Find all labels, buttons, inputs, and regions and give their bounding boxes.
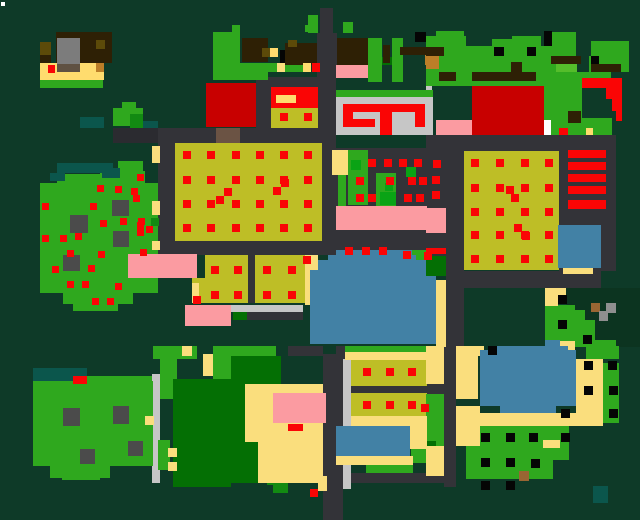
sand [426,446,444,476]
crop-dot [207,151,215,159]
berry-dot [88,265,95,272]
sand [456,406,480,446]
palm-dot [561,409,570,418]
crop-dot [545,255,553,263]
berry-dot [131,188,138,195]
crop-dot [432,176,440,184]
palm-dot [558,320,567,329]
palm-dot [584,361,593,370]
berry-dot [60,235,67,242]
berry-dot [107,298,114,305]
crop-dot [232,200,240,208]
crop-dot [545,184,553,192]
yellow-accent [277,63,285,72]
grass [426,36,466,46]
grass [436,399,444,413]
sand [336,456,413,465]
crop-dot [183,176,191,184]
crop-dot [545,231,553,239]
crop-dot [521,255,529,263]
grass [552,32,576,46]
grass [232,25,240,33]
berry-dot [42,203,49,210]
palm-dot [481,433,490,442]
plaza [415,112,425,127]
museum-house [216,128,240,143]
sand [152,241,160,250]
museum-house [57,64,80,72]
berry-dot [92,298,99,305]
crop-dot [471,159,479,167]
crop-dot [280,224,288,232]
tree [556,64,577,72]
crop-dot [207,200,215,208]
crop-dot [273,187,281,195]
red-accent [288,424,303,431]
tree [439,72,456,81]
tree [426,56,439,69]
crop-dot [256,200,264,208]
museum-house [96,63,104,72]
pink-zone [436,120,472,135]
red-accent [568,150,606,158]
crop-dot [408,401,416,409]
forest [233,312,247,320]
rock [113,231,129,247]
plaza [380,112,392,135]
museum-house [40,42,51,55]
berry-dot [137,222,144,229]
crop-dot [304,176,312,184]
red-accent [568,162,606,170]
grass [213,63,268,80]
teal-patch [102,168,120,178]
garden-square [406,167,416,177]
crop-dot [421,404,429,412]
crop-dot [232,151,240,159]
water [545,340,560,351]
crop-dot [304,151,312,159]
crop-dot [363,368,371,376]
crop-dot [433,160,441,168]
pink-zone [336,206,427,230]
crop-dot [280,113,288,121]
tree [415,32,426,42]
road [351,386,427,393]
crop-dot [514,224,522,232]
water [310,316,426,344]
crop-dot [545,208,553,216]
road [317,33,337,77]
fence [343,359,351,489]
grass [122,102,136,110]
crop-dot [511,194,519,202]
grass [593,340,616,351]
crop-dot [183,200,191,208]
road [320,8,333,33]
crop-dot [368,194,376,202]
crop-dot [414,159,422,167]
sand [168,448,177,457]
crop-dot [545,159,553,167]
crop-dot [256,151,264,159]
berry-dot [115,283,122,290]
forest [231,436,261,483]
tree [337,38,368,65]
crop-dot [424,252,432,260]
crop-dot [288,291,296,299]
crop-dot [256,224,264,232]
grass [411,449,427,463]
crop-dot [183,151,191,159]
crop-dot [496,159,504,167]
sand [545,296,558,306]
crop-dot [232,224,240,232]
tree [494,47,504,56]
crop-dot [496,231,504,239]
rock [80,449,95,464]
rock [63,408,80,426]
crop-dot [408,368,416,376]
red-accent [568,186,606,194]
grass [62,474,100,480]
red-accent [582,78,622,88]
berry-dot [82,281,89,288]
garden-square [351,160,361,170]
museum-house [48,65,55,73]
building [544,120,551,135]
red-accent [568,200,606,209]
water [480,350,576,406]
crop-dot [211,291,219,299]
crop-dot [183,224,191,232]
grass [305,25,313,32]
grass [512,36,541,46]
berry-dot [98,251,105,258]
crop-dot [345,247,353,255]
red-accent [568,174,606,182]
pink-zone [336,65,368,78]
road [444,347,456,487]
sand [168,462,177,471]
sand [563,268,593,274]
garden-square [380,192,396,205]
crop-dot [304,113,312,121]
rock [70,215,88,233]
red-accent [312,63,320,72]
tree [568,111,581,123]
grass [426,81,472,86]
sand [351,416,427,426]
palm-dot [558,295,567,304]
road [248,255,255,303]
berry-dot [120,218,127,225]
palm-dot [529,433,538,442]
pink-zone [273,393,326,423]
water [424,276,436,344]
crop-dot [408,177,416,185]
grass [392,38,403,82]
tree [527,47,536,56]
tree [519,471,529,481]
palm-dot [506,433,515,442]
water [558,225,601,268]
sand [410,426,427,449]
palm-dot [488,346,497,355]
crop-dot [379,247,387,255]
grass [591,41,629,56]
crop-dot [224,188,232,196]
rock [128,441,143,456]
palm-dot [609,386,618,395]
crop-dot [232,176,240,184]
berry-dot [115,186,122,193]
plaza [353,119,375,127]
water [500,406,556,413]
tree [383,45,390,63]
crop-dot [288,266,296,274]
berry-dot [67,250,74,257]
crop-dot [471,184,479,192]
pink-zone [128,254,197,278]
forest [273,485,288,493]
crop-dot [432,191,440,199]
crop-dot [386,177,394,185]
crop-dot [356,194,364,202]
crop-dot [521,208,529,216]
grass [151,218,159,226]
road [288,346,323,356]
teal-patch [50,173,65,181]
road [158,241,336,255]
crop-dot [310,489,318,497]
berry-dot [137,229,144,236]
crop-dot [280,200,288,208]
tree [551,56,581,64]
grass [213,346,231,379]
teal-patch [593,486,608,503]
sand [152,201,160,215]
tree [599,311,608,321]
tree [288,40,297,47]
crop-dot [399,159,407,167]
forest [173,379,231,487]
sand [345,352,427,360]
plaza [343,104,425,112]
berry-dot [90,203,97,210]
rock [112,200,129,216]
crop-dot [521,184,529,192]
sand [456,346,478,399]
water [336,426,410,456]
crop-dot [416,194,424,202]
crop-dot [216,196,224,204]
red-accent [559,128,568,135]
rock [63,255,80,271]
palm-dot [608,361,617,370]
tree [591,56,599,64]
palm-dot [506,458,515,467]
crop-dot [280,151,288,159]
crop-dot [363,401,371,409]
crop-dot [386,368,394,376]
crop-dot [521,159,529,167]
sand [182,346,192,356]
red-accent [616,111,622,121]
museum-house [40,80,103,88]
berry-dot [42,235,49,242]
tree [426,47,444,56]
tree [544,31,552,46]
red-accent [73,376,87,384]
building [472,86,544,135]
crop-dot [471,208,479,216]
water [318,260,426,320]
crop-dot [303,256,311,264]
road [426,384,444,394]
palm-dot [481,458,490,467]
crop-dot [384,159,392,167]
berry-dot [100,220,107,227]
crop-dot [234,266,242,274]
crop-dot [496,255,504,263]
crop-dot [403,251,411,259]
berry-dot [133,195,140,202]
tree [270,48,278,57]
sand [426,346,444,384]
speck [1,2,5,6]
palm-dot [561,433,570,442]
berry-dot [146,226,153,233]
crop-dot [281,179,289,187]
palm-dot [584,386,593,395]
sand [203,354,213,376]
fence [231,305,303,312]
museum-house [96,40,105,49]
crop-dot [471,255,479,263]
farm-field [175,143,322,241]
crop-dot [263,266,271,274]
pink-zone [426,208,446,233]
sand [145,416,154,425]
game-world-map[interactable] [0,0,640,520]
teal-patch [143,121,158,128]
crop-dot [506,186,514,194]
crop-dot [207,224,215,232]
yellow-accent [303,63,311,72]
tree [511,62,522,72]
berry-dot [52,266,59,273]
rock [113,406,129,424]
building [276,95,296,103]
sand [318,476,327,491]
sand [332,150,348,175]
crop-dot [193,296,201,304]
crop-dot [234,291,242,299]
crop-dot [368,159,376,167]
road [322,128,336,241]
crop-dot [211,266,219,274]
palm-dot [481,481,490,490]
road [158,143,175,241]
water [310,270,318,320]
palm-dot [506,481,515,490]
crop-dot [522,232,530,240]
crop-dot [356,177,364,185]
crop-dot [304,200,312,208]
sand [543,440,560,448]
palm-dot [583,335,592,344]
berry-dot [137,174,144,181]
palm-dot [531,459,540,468]
road [113,128,158,143]
berry-dot [75,233,82,240]
crop-dot [256,176,264,184]
red-accent [612,99,622,111]
crop-dot [419,177,427,185]
yellow-accent [586,128,593,135]
crop-dot [207,176,215,184]
tree [472,72,536,81]
berry-dot [67,281,74,288]
grass [130,114,143,128]
crop-dot [496,184,504,192]
sand [152,146,160,163]
plaza [343,112,353,127]
crop-dot [471,231,479,239]
crop-dot [263,291,271,299]
grass [343,22,353,33]
berry-dot [97,185,104,192]
berry-dot [140,249,147,256]
grass [338,173,346,206]
sand [436,280,446,347]
road [247,312,303,320]
forest [175,477,208,485]
grass [578,118,612,135]
pink-zone [185,305,231,326]
crop-dot [304,224,312,232]
crop-dot [386,401,394,409]
teal-patch [80,117,104,128]
crop-dot [404,194,412,202]
crop-dot [496,208,504,216]
sand [258,440,323,483]
road [446,135,464,347]
tree [591,64,621,72]
crop-dot [362,247,370,255]
building [206,83,256,127]
palm-dot [609,409,618,418]
plaza [336,90,433,97]
grass [368,38,382,82]
red-accent [606,88,622,99]
